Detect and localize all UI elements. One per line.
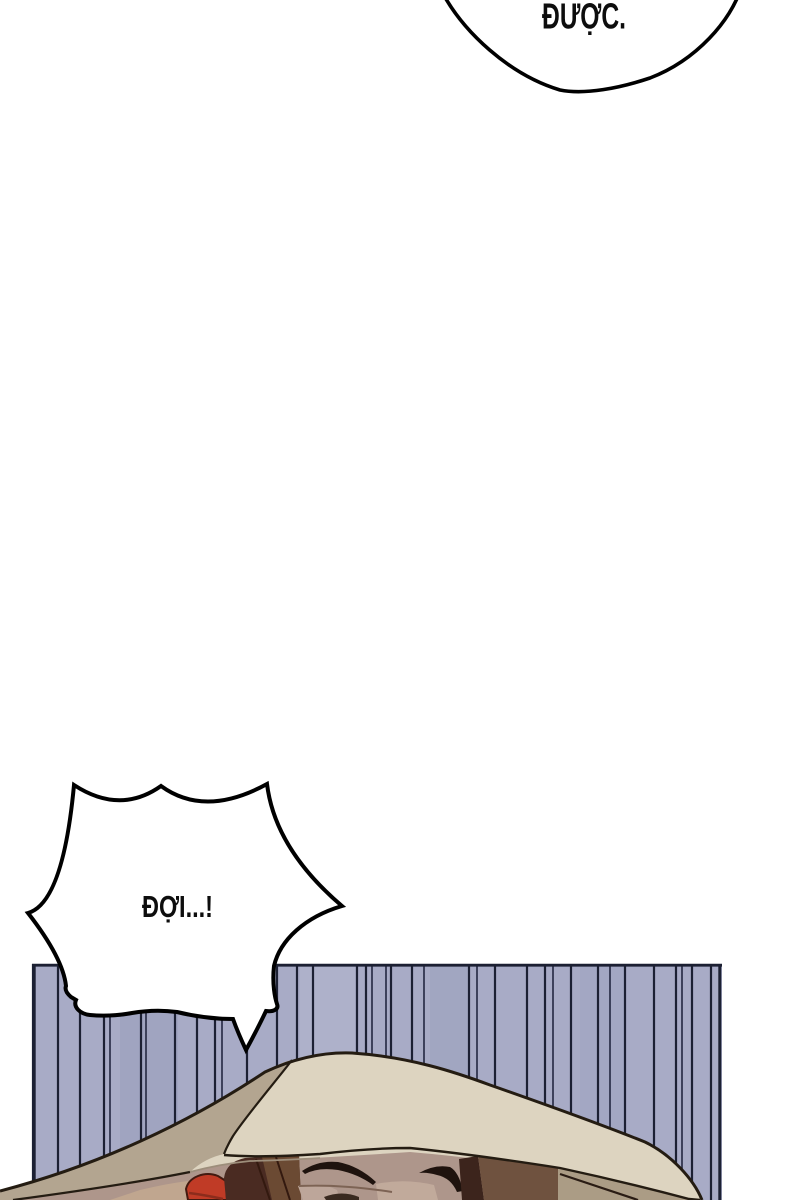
svg-text:ĐƯỢC.: ĐƯỢC.	[542, 0, 626, 37]
svg-text:ĐỢI...!: ĐỢI...!	[142, 890, 213, 924]
